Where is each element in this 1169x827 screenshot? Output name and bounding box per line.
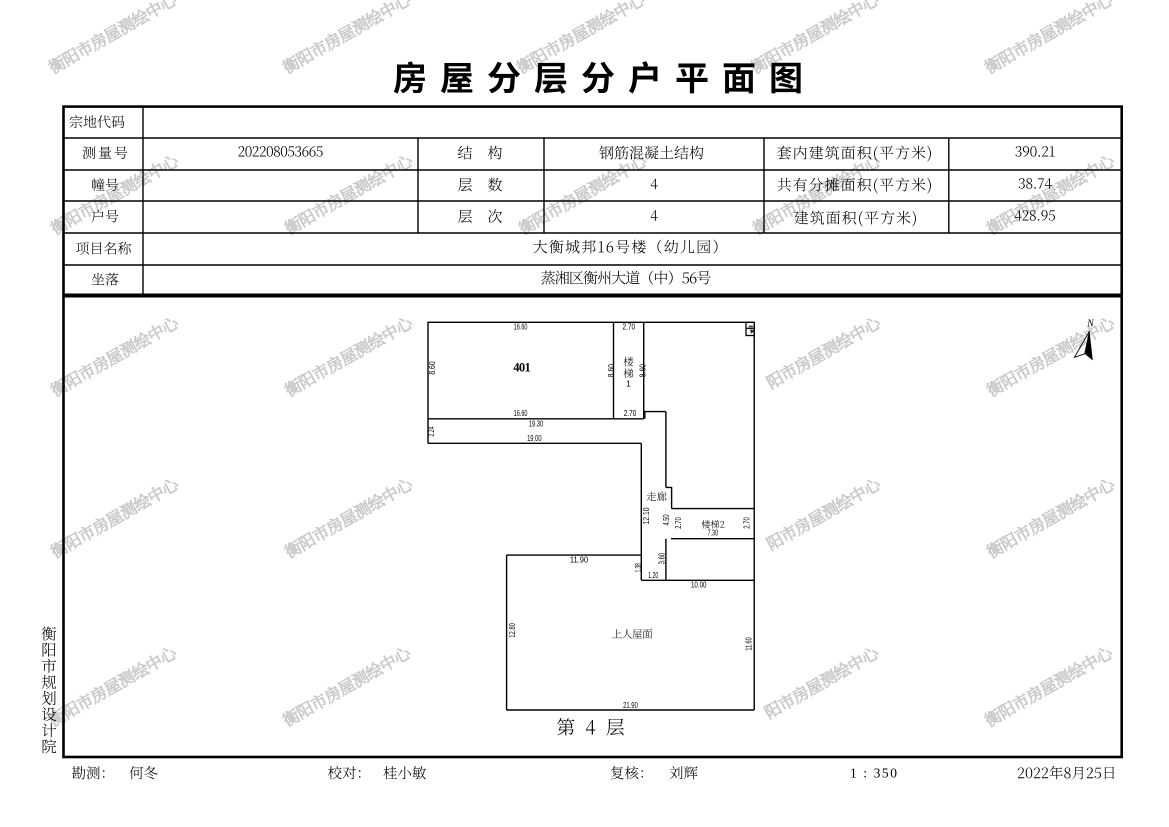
svg-text:8.60: 8.60	[607, 364, 617, 377]
svg-text:12.10: 12.10	[641, 508, 651, 525]
svg-text:2.70: 2.70	[622, 322, 635, 332]
svg-text:19.30: 19.30	[529, 421, 544, 429]
svg-text:2.70: 2.70	[675, 517, 683, 529]
svg-text:2.70: 2.70	[624, 408, 637, 418]
svg-text:10.00: 10.00	[691, 581, 707, 590]
svg-text:12.80: 12.80	[509, 623, 517, 638]
svg-text:16.60: 16.60	[514, 410, 528, 418]
svg-text:1: 1	[626, 379, 631, 389]
svg-text:N: N	[1086, 319, 1095, 330]
svg-text:7.30: 7.30	[707, 530, 718, 538]
svg-text:11.60: 11.60	[746, 637, 754, 650]
svg-text:16.60: 16.60	[514, 323, 528, 331]
svg-text:19.00: 19.00	[527, 435, 542, 443]
svg-text:1.20: 1.20	[648, 572, 658, 580]
svg-text:1.38: 1.38	[635, 563, 644, 573]
svg-text:4.50: 4.50	[663, 514, 671, 525]
svg-text:8.60: 8.60	[427, 361, 437, 374]
svg-text:2.70: 2.70	[744, 517, 752, 529]
svg-text:21.90: 21.90	[623, 702, 638, 710]
svg-text:8.60: 8.60	[638, 364, 648, 377]
svg-text:2.24: 2.24	[428, 426, 436, 436]
svg-text:11.90: 11.90	[570, 555, 588, 564]
svg-text:401: 401	[513, 361, 531, 375]
